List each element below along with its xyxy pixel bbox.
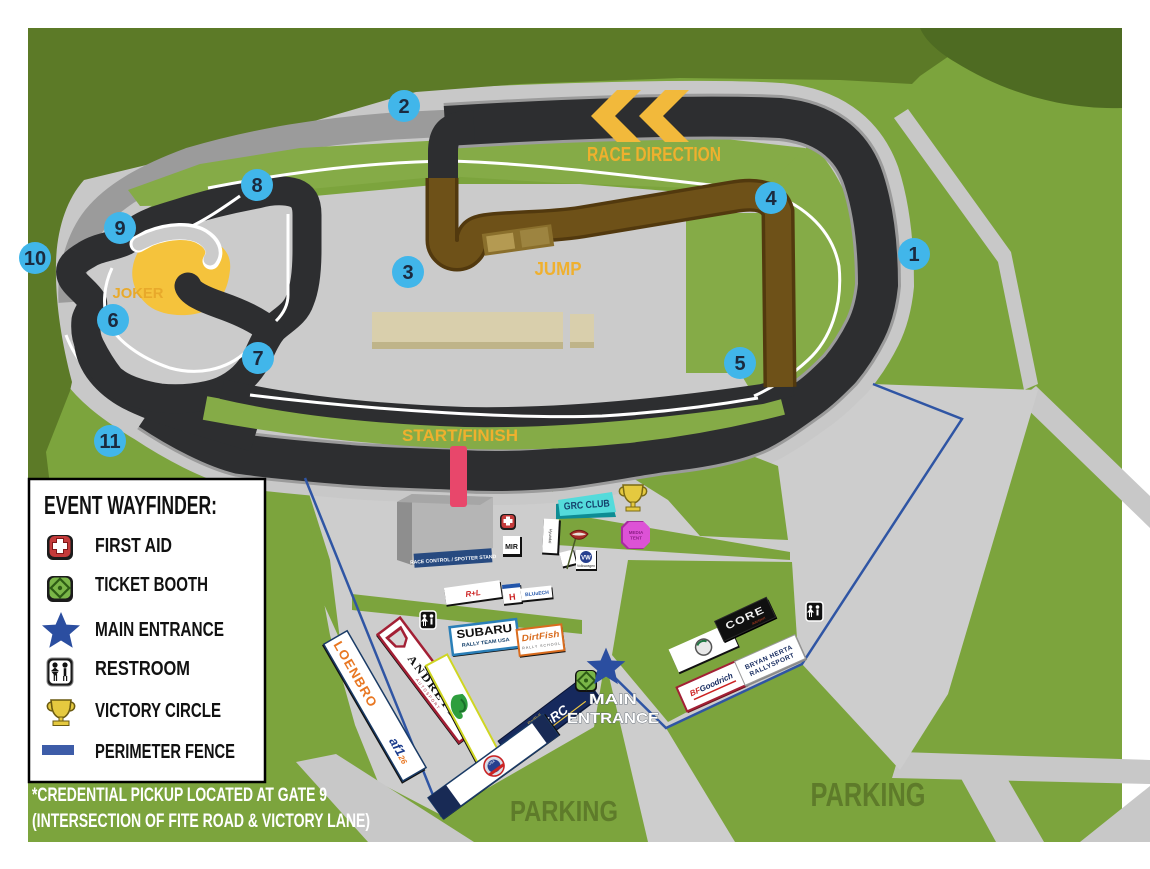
svg-text:(INTERSECTION OF FITE ROAD & V: (INTERSECTION OF FITE ROAD & VICTORY LAN… [32,811,370,832]
svg-text:PERIMETER FENCE: PERIMETER FENCE [95,741,235,763]
svg-text:10: 10 [24,248,46,270]
svg-text:*CREDENTIAL PICKUP LOCATED AT: *CREDENTIAL PICKUP LOCATED AT GATE 9 [32,785,327,806]
svg-text:RESTROOM: RESTROOM [95,658,190,680]
svg-text:9: 9 [114,218,125,240]
svg-text:JUMP: JUMP [535,259,582,279]
svg-text:PARKING: PARKING [510,796,618,828]
svg-text:4: 4 [765,188,777,210]
svg-text:VW: VW [581,556,591,562]
svg-text:1: 1 [908,244,919,266]
svg-text:TICKET BOOTH: TICKET BOOTH [95,574,208,596]
svg-text:FIRST AID: FIRST AID [95,535,172,557]
svg-text:Volkswagen: Volkswagen [577,564,595,568]
svg-text:8: 8 [251,175,262,197]
svg-text:Hyundai: Hyundai [548,529,554,544]
svg-text:MIR: MIR [505,544,518,551]
svg-text:2: 2 [398,96,409,118]
svg-text:TENT: TENT [630,536,642,541]
svg-text:11: 11 [99,431,120,453]
svg-text:7: 7 [252,348,263,370]
svg-text:RACE DIRECTION: RACE DIRECTION [587,144,721,166]
svg-text:MAIN: MAIN [589,691,637,708]
svg-text:H: H [509,592,517,603]
svg-text:MEDIA: MEDIA [629,530,644,535]
svg-text:PARKING: PARKING [811,776,926,813]
svg-text:MAIN ENTRANCE: MAIN ENTRANCE [95,619,224,641]
svg-text:5: 5 [734,353,745,375]
svg-text:ENTRANCE: ENTRANCE [567,710,659,727]
svg-text:VICTORY CIRCLE: VICTORY CIRCLE [95,700,221,722]
svg-text:3: 3 [402,262,413,284]
svg-text:EVENT WAYFINDER:: EVENT WAYFINDER: [44,490,217,520]
svg-text:START/FINISH: START/FINISH [402,426,518,445]
svg-text:6: 6 [107,310,118,332]
svg-text:JOKER: JOKER [113,285,164,302]
